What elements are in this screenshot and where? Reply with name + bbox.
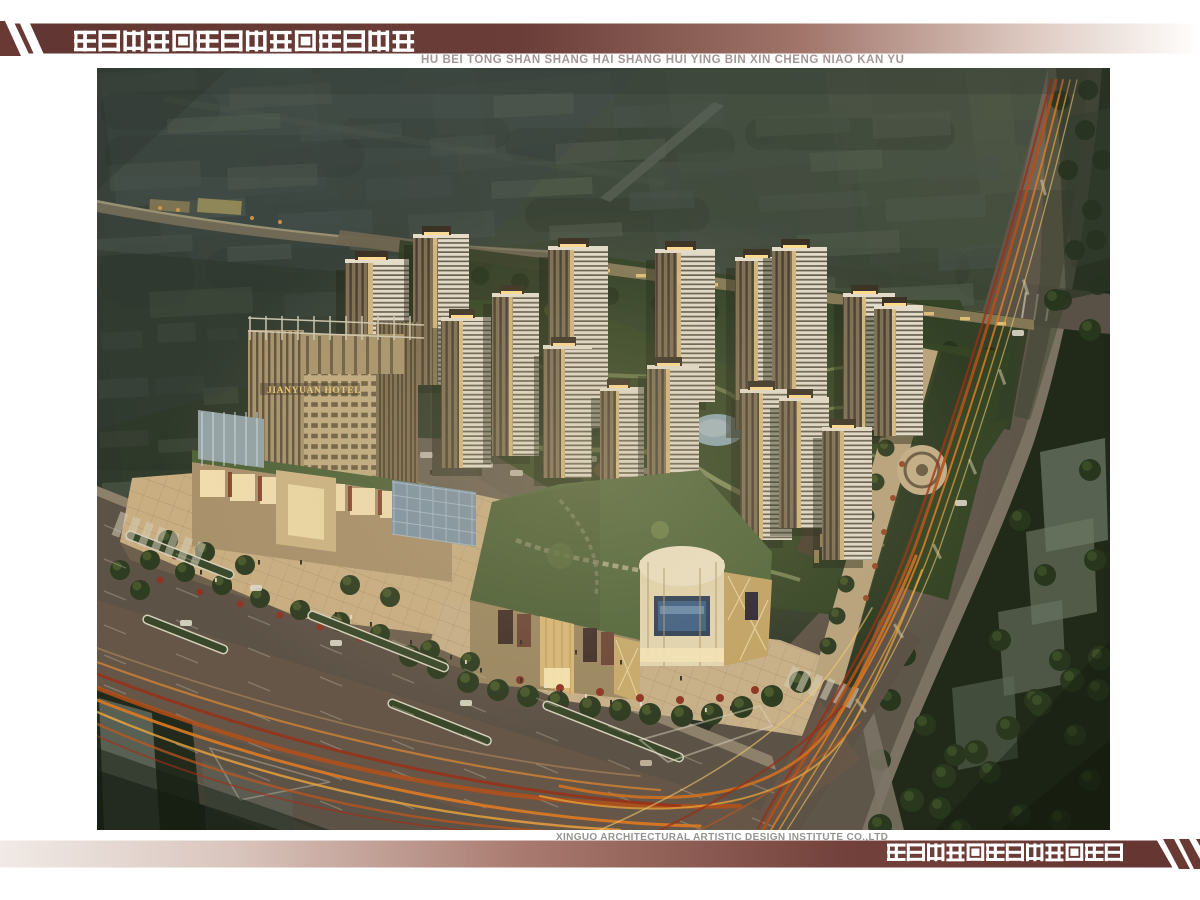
svg-text:HU BEI TONG SHAN SHANG HAI SHA: HU BEI TONG SHAN SHANG HAI SHANG HUI YIN… [421,54,904,66]
